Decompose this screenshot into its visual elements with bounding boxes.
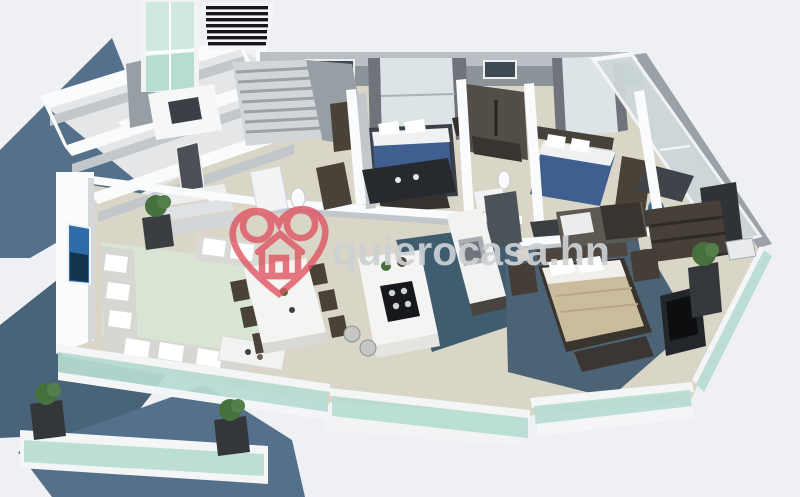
planter: [214, 416, 250, 456]
planter: [30, 400, 66, 440]
striped-stair-roof: [203, 3, 274, 50]
bar-stool: [360, 340, 376, 356]
planter: [142, 214, 174, 250]
planter: [688, 262, 722, 318]
watermark-text: quierocasa.hn: [332, 228, 610, 274]
window: [484, 61, 516, 78]
ac-unit: [726, 238, 756, 260]
floor-plan-scene: quierocasa.hn: [0, 0, 800, 497]
bar-stool: [344, 326, 360, 342]
floor-plan-render: quierocasa.hn: [0, 0, 800, 497]
